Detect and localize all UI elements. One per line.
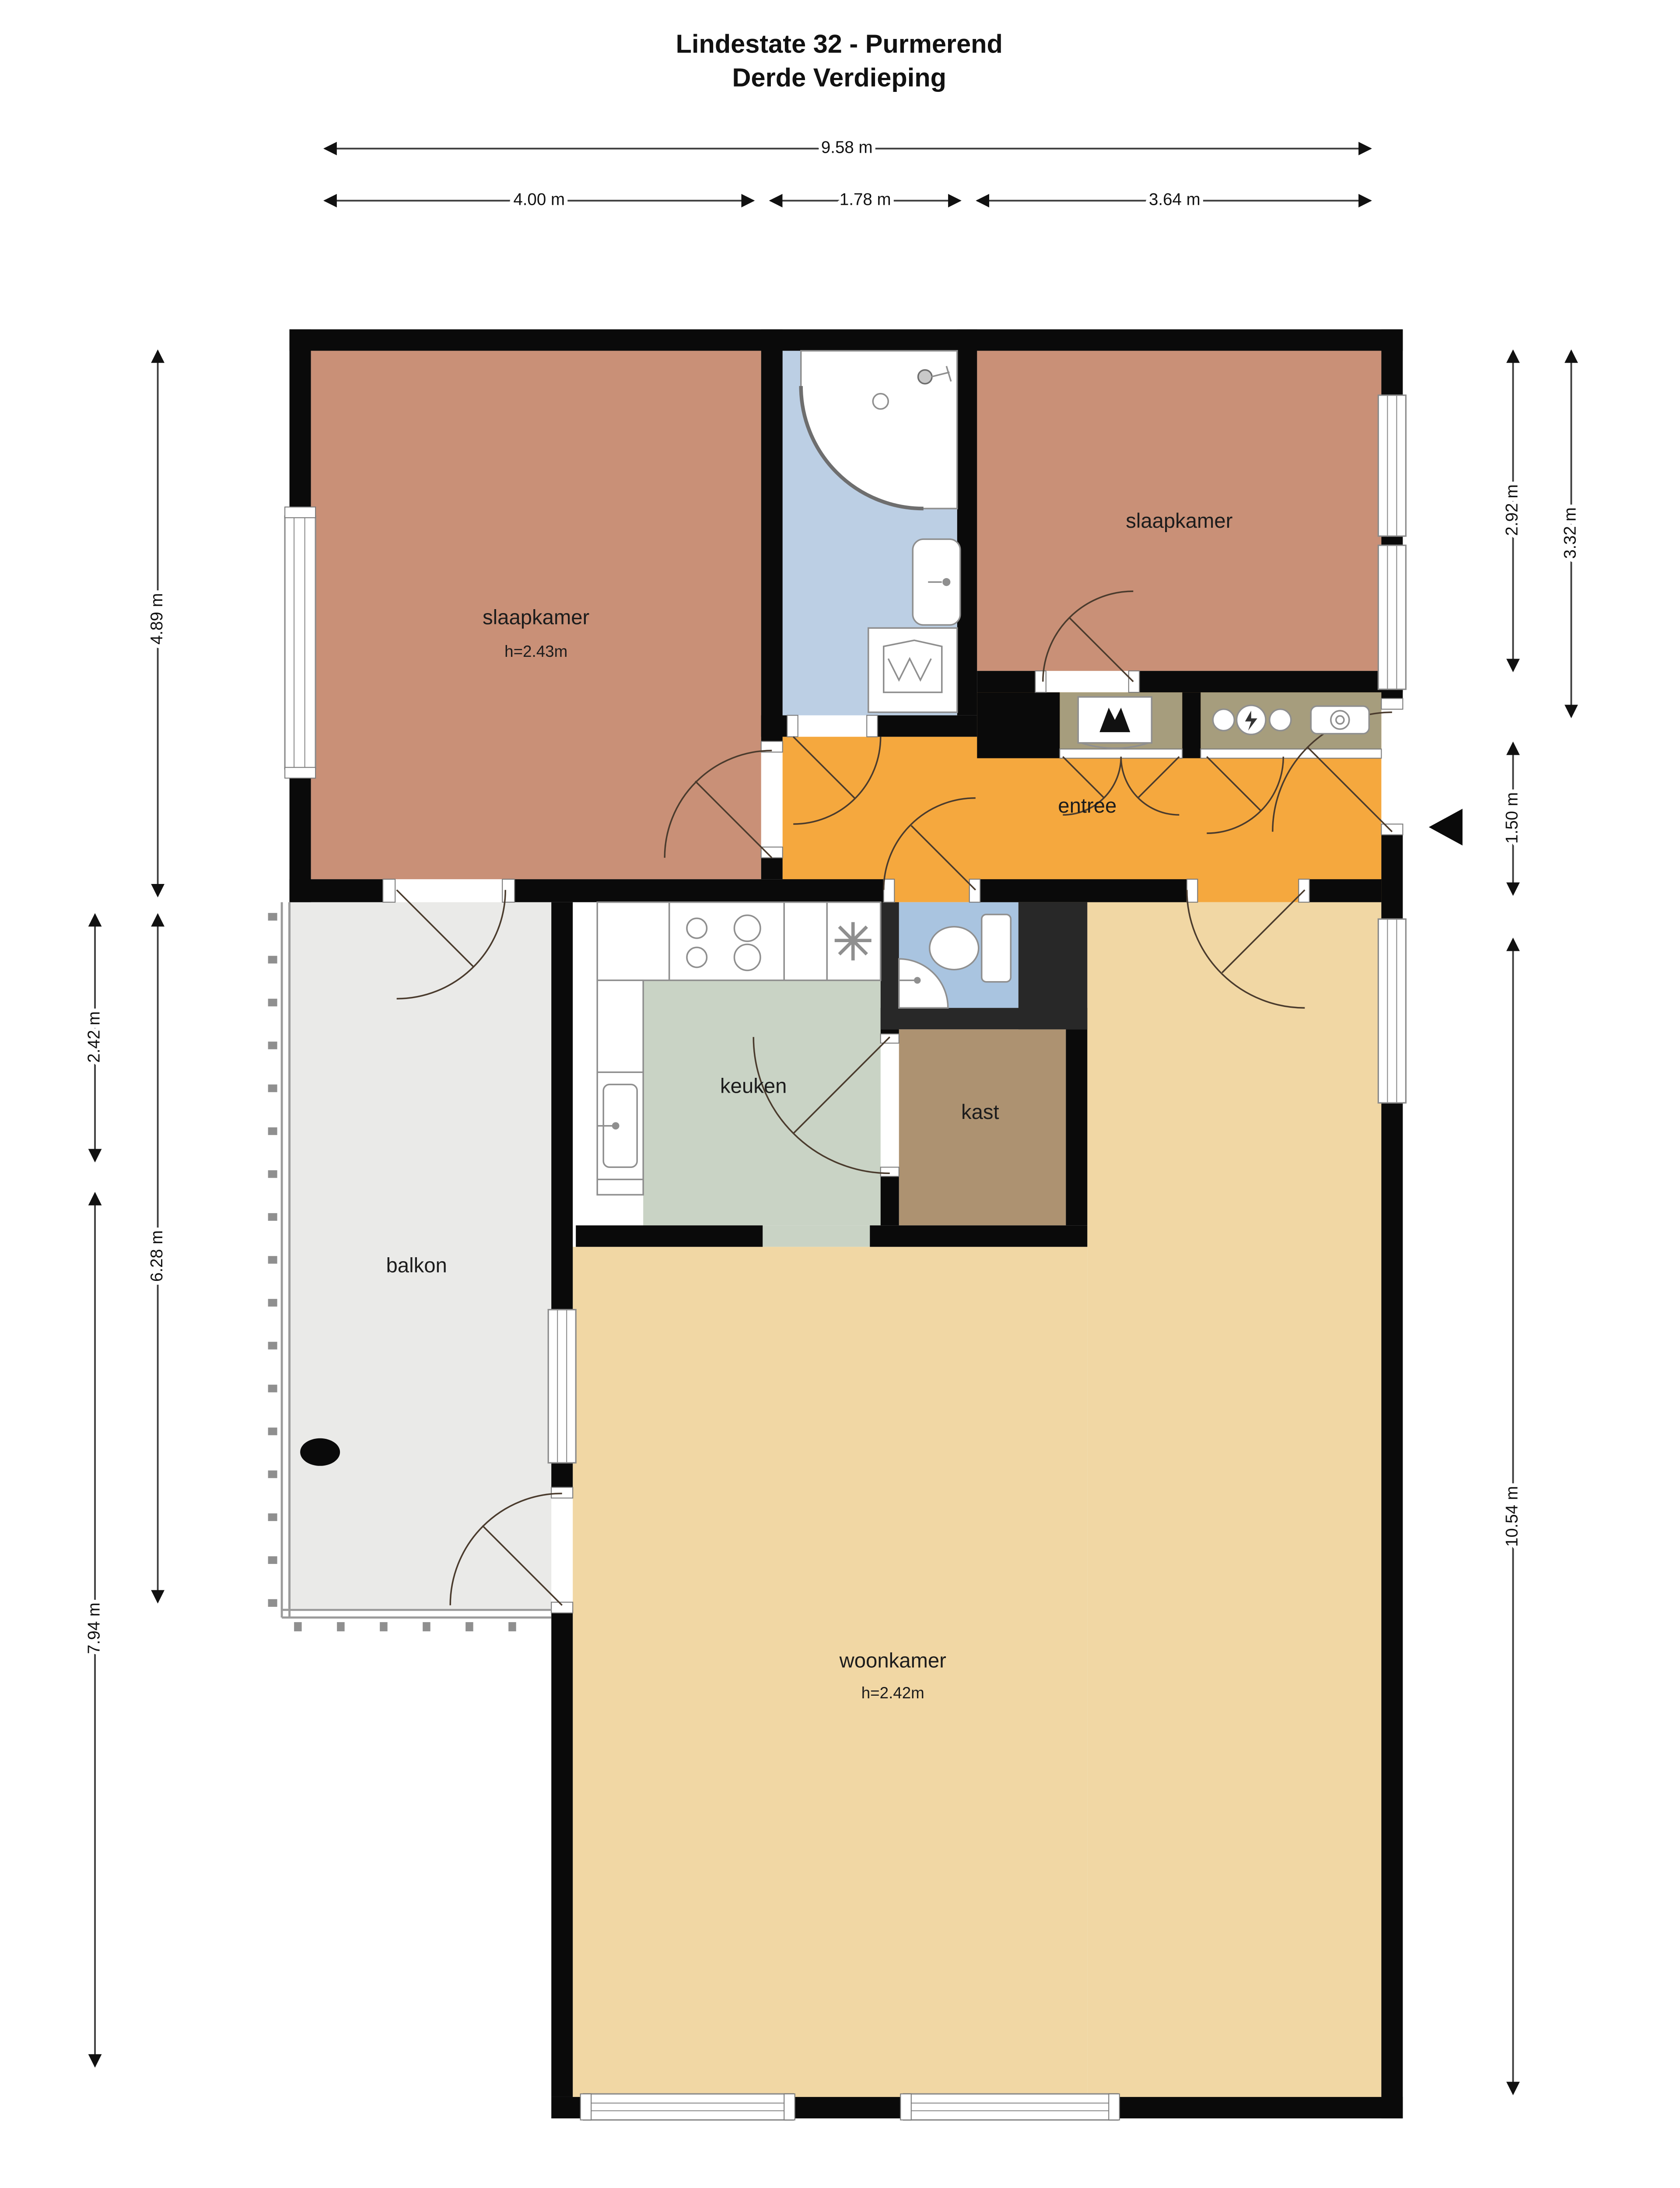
dim-right-3: 1.50 m xyxy=(1503,792,1522,844)
dim-top-seg3: 3.64 m xyxy=(1149,190,1200,209)
dim-left-1: 4.89 m xyxy=(147,593,166,645)
room-kast xyxy=(899,1029,1066,1225)
dim-right-2: 3.32 m xyxy=(1561,507,1580,559)
window-bedroom-left xyxy=(285,507,315,778)
balcony-drain-icon xyxy=(300,1438,340,1466)
washing-machine-icon xyxy=(868,628,957,712)
dim-top-total: 9.58 m xyxy=(821,138,873,157)
label-bedroom-right: slaapkamer xyxy=(1126,509,1232,533)
dim-left-3: 6.28 m xyxy=(147,1230,166,1282)
label-kast: kast xyxy=(961,1101,999,1124)
window-living-to-balcony xyxy=(548,1310,576,1463)
floor-plan-page: Lindestate 32 - Purmerend Derde Verdiepi… xyxy=(0,0,1680,2188)
kitchen-sink-icon xyxy=(597,1084,637,1167)
floor-plan-canvas: Lindestate 32 - Purmerend Derde Verdiepi… xyxy=(0,0,1680,2188)
label-kitchen: keuken xyxy=(720,1075,787,1098)
label-bedroom-left: slaapkamer xyxy=(483,606,589,629)
dim-right-4: 10.54 m xyxy=(1503,1486,1522,1547)
window-entree-right xyxy=(1378,919,1406,1103)
room-entree xyxy=(783,737,1382,902)
dim-right-1: 2.92 m xyxy=(1503,484,1522,536)
kitchen-passage xyxy=(763,1225,870,1247)
extractor-icon xyxy=(835,922,871,961)
bathroom-sink-icon xyxy=(913,539,960,625)
room-fills xyxy=(288,351,1381,2097)
label-bedroom-left-height: h=2.43m xyxy=(504,642,567,660)
room-living-main xyxy=(573,1247,1087,2097)
intercom-icon xyxy=(1078,697,1151,748)
window-living-bottom-left xyxy=(581,2094,795,2120)
dim-top-seg2: 1.78 m xyxy=(840,190,891,209)
dim-top-seg1: 4.00 m xyxy=(513,190,565,209)
page-title: Lindestate 32 - Purmerend xyxy=(676,29,1003,59)
page-subtitle: Derde Verdieping xyxy=(732,63,946,92)
entrance-arrow-icon xyxy=(1429,809,1463,845)
label-living-room-height: h=2.42m xyxy=(861,1684,924,1702)
label-balcony: balkon xyxy=(386,1254,447,1277)
window-living-bottom-right xyxy=(900,2094,1120,2120)
room-living-right xyxy=(1087,902,1381,2097)
room-kitchen xyxy=(643,980,881,1225)
dim-left-2: 2.42 m xyxy=(84,1011,103,1063)
dim-left-4: 7.94 m xyxy=(84,1602,103,1654)
label-entree: entree xyxy=(1058,794,1116,817)
label-living-room: woonkamer xyxy=(839,1649,946,1672)
